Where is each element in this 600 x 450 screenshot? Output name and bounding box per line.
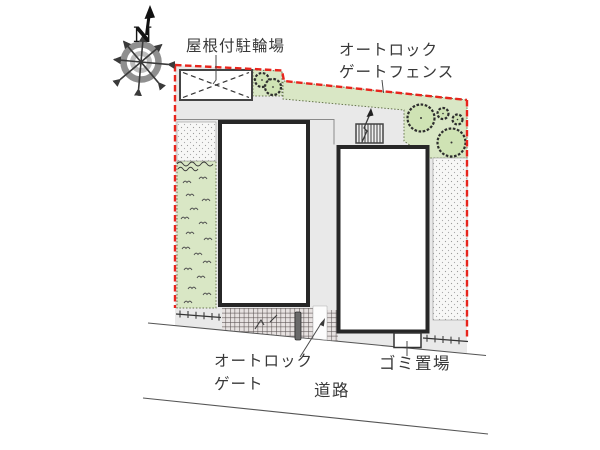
site-plan-page: N 屋根付駐輪場 オートロック ゲートフェンス オートロック ゲート 道路 ゴミ… <box>0 0 600 450</box>
gravel-strip-left <box>177 122 216 161</box>
site-plan-drawing: N 屋根付駐輪場 オートロック ゲートフェンス オートロック ゲート 道路 ゴミ… <box>0 0 600 450</box>
label-gate-fence-line1: オートロック <box>339 41 438 59</box>
building-right <box>339 147 428 332</box>
entrance-paving-2 <box>327 310 338 341</box>
gravel-strip-right <box>433 158 467 320</box>
gate-opening <box>313 306 327 340</box>
planting-strip-left <box>177 161 216 308</box>
label-road: 道路 <box>314 381 350 400</box>
label-gate-line2: ゲート <box>214 375 264 393</box>
label-garbage: ゴミ置場 <box>379 353 451 373</box>
gate-post <box>295 312 301 340</box>
label-gate-line1: オートロック <box>214 352 313 370</box>
building-left <box>220 122 308 305</box>
label-bicycle-parking: 屋根付駐輪場 <box>186 37 285 55</box>
label-gate-fence-line2: ゲートフェンス <box>339 63 454 81</box>
north-label: N <box>133 22 152 47</box>
